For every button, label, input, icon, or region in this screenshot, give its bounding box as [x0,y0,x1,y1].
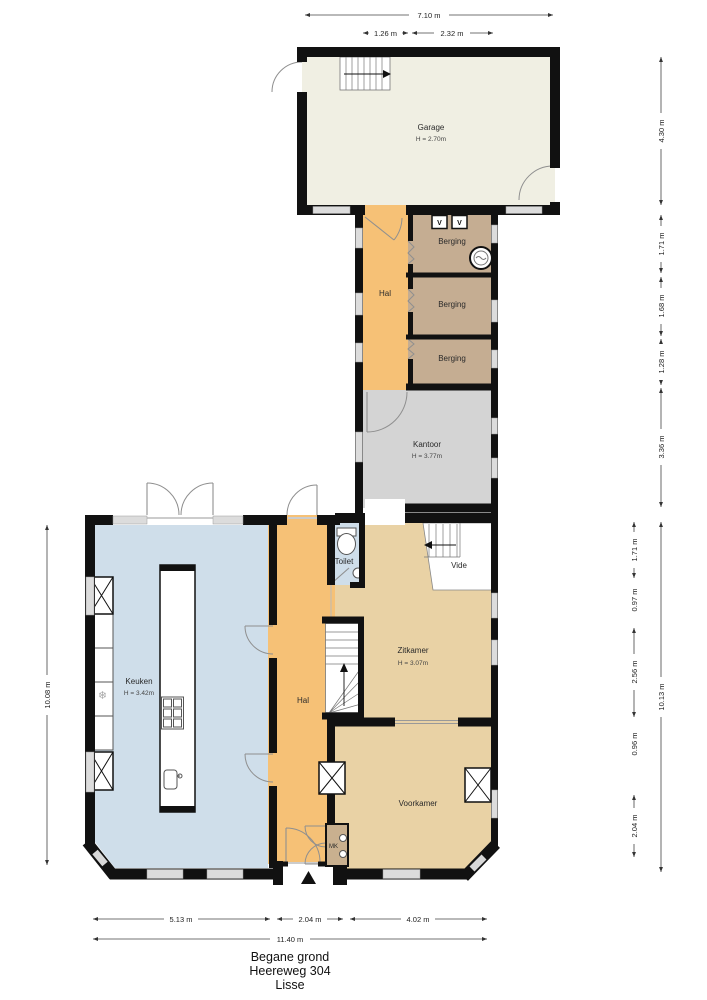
dim-right-voor-a: 0.96 m [629,726,639,762]
meterkast-label: MK [329,844,338,850]
vide-label: Vide [451,561,467,570]
svg-text:V: V [457,220,462,227]
dim-right-kantoor: 3.36 m [656,388,666,507]
toilet-icon [337,528,356,555]
svg-text:1.26 m: 1.26 m [374,29,397,38]
svg-text:2.32 m: 2.32 m [441,29,464,38]
svg-text:2.04 m: 2.04 m [299,915,322,924]
svg-text:4.30 m: 4.30 m [657,120,666,143]
floorplan-page: ❄ [0,0,707,1000]
svg-text:2.04 m: 2.04 m [630,815,639,838]
svg-text:1.71 m: 1.71 m [657,233,666,256]
garage-height: H = 2.70m [416,136,446,143]
svg-text:11.40 m: 11.40 m [277,935,304,944]
entrance-arrow-icon [301,871,316,884]
vide-floor [423,523,492,590]
hal-top-label: Hal [379,289,391,298]
dim-top-total: 7.10 m [305,10,553,20]
dim-bottom-voorkamer: 4.02 m [350,914,487,924]
dim-right-berging2: 1.68 m [656,277,666,336]
svg-text:4.02 m: 4.02 m [407,915,430,924]
svg-text:10.13 m: 10.13 m [657,683,666,710]
dim-bottom-total: 11.40 m [93,934,487,944]
stove-icon [162,697,184,729]
berging3-label: Berging [438,354,466,363]
dim-right-total-lower: 10.13 m [656,522,666,872]
title-city: Lisse [275,978,304,992]
berging2-label: Berging [438,300,466,309]
dim-left-total: 10.08 m [42,525,52,865]
svg-text:1.68 m: 1.68 m [657,295,666,318]
fridge-icon: ❄ [98,690,107,702]
title-level: Begane grond [251,950,330,964]
svg-text:1.71 m: 1.71 m [630,539,639,562]
hal-main-label: Hal [297,696,309,705]
svg-text:1.28 m: 1.28 m [657,351,666,374]
door-arc [287,485,317,518]
kantoor-height: H = 3.77m [412,453,442,460]
svg-text:0.97 m: 0.97 m [630,589,639,612]
floorplan-canvas: ❄ [0,0,707,1000]
washing-machine-icon [470,247,492,269]
ventilation-icon: V [432,216,447,229]
ventilation-icon: V [452,216,467,229]
svg-text:3.36 m: 3.36 m [657,436,666,459]
svg-text:10.08 m: 10.08 m [43,681,52,708]
dim-right-berging1: 1.71 m [656,215,666,273]
garage-stairs-icon [340,57,391,90]
garage-label: Garage [418,123,445,132]
hal-stairs-icon [326,624,362,714]
dim-right-voor-b: 2.04 m [629,795,639,857]
dim-right-zit-c: 2.56 m [629,628,639,717]
title-street: Heereweg 304 [249,964,330,978]
dim-top-berging: 2.32 m [412,28,493,38]
keuken-height: H = 3.42m [124,690,154,697]
keuken-label: Keuken [125,677,152,686]
voorkamer-label: Voorkamer [399,799,438,808]
kantoor-passage [365,499,405,525]
kitchen-island [160,565,195,812]
door-arc [272,62,302,92]
svg-text:5.13 m: 5.13 m [170,915,193,924]
dim-bottom-hal: 2.04 m [277,914,343,924]
dim-top-hal: 1.26 m [363,28,408,38]
fireplace-icon [319,762,345,794]
meterkast: MK [326,824,348,866]
kantoor-floor [363,390,494,508]
fireplace-icon [465,768,491,802]
dim-right-garage: 4.30 m [656,57,666,205]
zitkamer-height: H = 3.07m [398,660,428,667]
svg-text:7.10 m: 7.10 m [418,11,441,20]
zitkamer-label: Zitkamer [397,646,428,655]
svg-text:0.96 m: 0.96 m [630,733,639,756]
svg-text:2.56 m: 2.56 m [630,661,639,684]
plan-title: Begane grond Heereweg 304 Lisse [249,950,330,992]
dim-bottom-keuken: 5.13 m [93,914,270,924]
dim-right-zit-a: 1.71 m [629,522,639,578]
svg-text:V: V [437,220,442,227]
french-doors [147,483,213,518]
hal-main-floor [268,515,335,864]
dim-right-zit-b: 0.97 m [629,582,639,618]
dim-right-berging3: 1.28 m [656,339,666,385]
berging1-label: Berging [438,237,466,246]
toilet-label: Toilet [335,557,354,566]
kantoor-label: Kantoor [413,440,441,449]
